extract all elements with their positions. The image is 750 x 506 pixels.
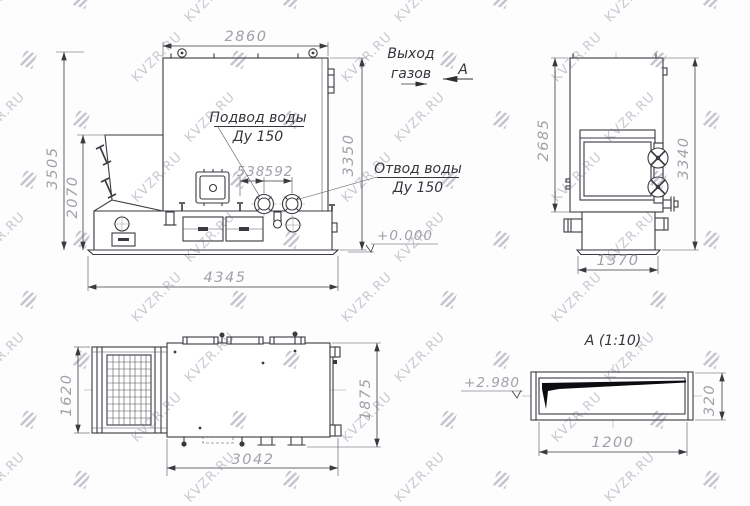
section-a-view: А (1:10) +2.980 320 1200	[461, 333, 726, 456]
dim-base-length: 4345	[204, 270, 247, 286]
boiler-drawing-svg: 2860 3505 2070 3350 4345 538 592 Подвод …	[0, 0, 750, 500]
dim-grate-width: 1620	[59, 374, 75, 417]
gas-outlet-flange	[328, 69, 334, 93]
dim-duct-height: 320	[702, 384, 718, 416]
base-frame	[88, 203, 338, 255]
duct-level-value: +2.980	[464, 375, 520, 391]
front-view: 2685 3340 1370	[536, 52, 699, 274]
duct-level-mark: +2.980	[461, 375, 523, 398]
furnace-door	[580, 130, 655, 200]
plan-body	[167, 343, 330, 437]
dim-height-right: 3350	[341, 134, 357, 177]
right-stub-flange	[655, 218, 668, 230]
water-outlet-dn: Ду 150	[392, 180, 443, 196]
dim-nozzle-outlet: 592	[265, 164, 294, 180]
drain-flange	[663, 197, 678, 211]
zero-level-value: +0.000	[377, 228, 433, 244]
front-top-bolts	[573, 54, 656, 58]
valve-handwheel	[648, 177, 668, 197]
water-outlet-label: Отвод воды	[374, 161, 462, 177]
water-inlet-dn: Ду 150	[232, 129, 283, 145]
dim-height-total: 3505	[45, 147, 61, 190]
manhole-door	[196, 170, 229, 206]
left-stub-flange	[564, 219, 582, 232]
level-mark-icon	[512, 391, 521, 399]
plan-bottom-details	[181, 437, 305, 447]
dim-hopper-height: 2070	[65, 176, 81, 219]
dim-top-width: 2860	[225, 29, 268, 45]
plan-view: 1620 1875 3042	[59, 332, 381, 477]
dim-body-width: 1875	[358, 378, 374, 421]
level-mark-icon	[366, 245, 374, 253]
section-title: А (1:10)	[584, 333, 641, 349]
plan-top-supports	[183, 332, 305, 345]
water-inlet-label: Подвод воды	[209, 110, 306, 126]
drawing-sheet: 2860 3505 2070 3350 4345 538 592 Подвод …	[0, 0, 750, 500]
lifting-eyelets	[178, 49, 317, 57]
dim-duct-width: 1200	[592, 435, 635, 451]
front-base	[564, 212, 668, 255]
valve-handwheel	[648, 148, 668, 168]
zero-level-mark: +0.000	[348, 228, 438, 252]
gas-outlet-line2: газов	[391, 66, 431, 82]
top-bolts	[171, 54, 298, 58]
gas-outlet-line1: Выход	[387, 46, 434, 62]
gas-outlet-note: Выход газов	[387, 46, 434, 84]
gas-duct-section	[531, 372, 693, 420]
dim-front-width: 1370	[597, 253, 640, 269]
dim-total-height: 3340	[676, 137, 692, 180]
side-view: 2860 3505 2070 3350 4345 538 592 Подвод …	[45, 29, 473, 291]
section-arrow-label: А	[457, 62, 468, 78]
dim-body-height: 2685	[536, 119, 552, 162]
plan-right-stubs	[330, 347, 341, 436]
section-view-arrow: А	[443, 62, 473, 79]
grate-assembly	[92, 347, 167, 433]
ground-plate	[88, 250, 338, 255]
dim-plan-length: 3042	[232, 452, 275, 468]
dim-nozzle-inlet: 538	[237, 164, 266, 180]
